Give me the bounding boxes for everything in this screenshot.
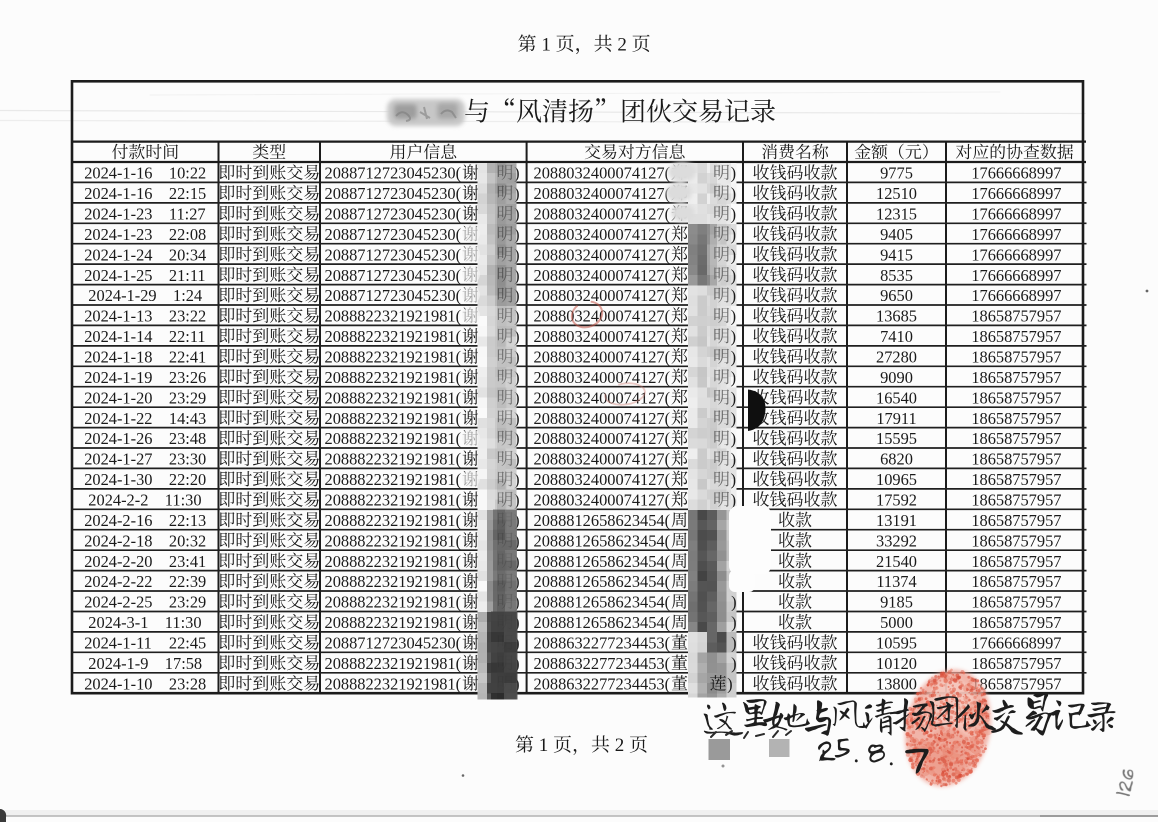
svg-text:6820: 6820 (880, 450, 913, 469)
svg-text:18658757957: 18658757957 (971, 348, 1061, 367)
svg-text:18658757957: 18658757957 (971, 429, 1061, 448)
svg-text:2024-1-20: 2024-1-20 (84, 388, 152, 407)
svg-text:2024-1-16: 2024-1-16 (84, 164, 152, 183)
svg-text:23:22: 23:22 (169, 307, 206, 326)
svg-text:33292: 33292 (876, 531, 917, 550)
svg-text:2: 2 (617, 34, 627, 55)
svg-text:18658757957: 18658757957 (971, 613, 1061, 632)
svg-text:12510: 12510 (876, 184, 917, 203)
svg-text:2024-1-26: 2024-1-26 (84, 429, 152, 448)
svg-text:10965: 10965 (876, 470, 917, 489)
svg-text:18658757957: 18658757957 (971, 531, 1061, 550)
svg-text:18658757957: 18658757957 (971, 491, 1061, 510)
svg-text:13191: 13191 (876, 511, 917, 530)
svg-text:18658757957: 18658757957 (971, 327, 1061, 346)
svg-text:18658757957: 18658757957 (971, 409, 1061, 428)
svg-text:2024-1-19: 2024-1-19 (84, 368, 152, 387)
svg-text:18658757957: 18658757957 (971, 572, 1061, 591)
svg-text:18658757957: 18658757957 (971, 368, 1061, 387)
svg-text:20:34: 20:34 (169, 245, 206, 264)
svg-text:2024-1-23: 2024-1-23 (84, 205, 152, 224)
svg-text:2024-1-23: 2024-1-23 (84, 225, 152, 244)
svg-text:27280: 27280 (876, 348, 917, 367)
svg-text:23:29: 23:29 (169, 593, 206, 612)
svg-text:17666668997: 17666668997 (971, 184, 1061, 203)
svg-text:10595: 10595 (876, 634, 917, 653)
svg-text:23:48: 23:48 (169, 429, 206, 448)
svg-text:1: 1 (539, 735, 549, 756)
svg-text:22:39: 22:39 (169, 572, 206, 591)
svg-text:11:27: 11:27 (169, 205, 206, 224)
svg-text:2024-2-25: 2024-2-25 (84, 593, 152, 612)
svg-text:14:43: 14:43 (169, 409, 206, 428)
svg-text:2024-1-27: 2024-1-27 (84, 450, 152, 469)
svg-text:11:30: 11:30 (165, 491, 202, 510)
svg-text:18658757957: 18658757957 (971, 654, 1061, 673)
svg-text:9090: 9090 (880, 368, 913, 387)
svg-text:1:24: 1:24 (173, 286, 202, 305)
svg-text:17666668997: 17666668997 (971, 266, 1061, 285)
svg-text:17666668997: 17666668997 (971, 245, 1061, 264)
svg-text:2024-1-25: 2024-1-25 (84, 266, 152, 285)
svg-text:23:41: 23:41 (169, 552, 206, 571)
svg-text:17592: 17592 (876, 491, 917, 510)
svg-text:18658757957: 18658757957 (971, 470, 1061, 489)
svg-text:2024-2-18: 2024-2-18 (84, 531, 152, 550)
svg-text:5000: 5000 (880, 613, 913, 632)
svg-text:22:13: 22:13 (169, 511, 206, 530)
svg-text:2024-2-16: 2024-2-16 (84, 511, 152, 530)
svg-text:10:22: 10:22 (169, 164, 206, 183)
svg-text:18658757957: 18658757957 (971, 511, 1061, 530)
svg-text:11:30: 11:30 (165, 613, 202, 632)
svg-text:9185: 9185 (880, 593, 913, 612)
svg-text:7410: 7410 (880, 327, 913, 346)
svg-text:2024-2-20: 2024-2-20 (84, 552, 152, 571)
svg-text:17666668997: 17666668997 (971, 225, 1061, 244)
svg-text:8535: 8535 (880, 266, 913, 285)
svg-text:18658757957: 18658757957 (971, 450, 1061, 469)
svg-text:23:28: 23:28 (169, 674, 206, 693)
svg-text:17666668997: 17666668997 (971, 634, 1061, 653)
svg-text:2024-1-13: 2024-1-13 (84, 307, 152, 326)
svg-text:13800: 13800 (876, 674, 917, 693)
svg-text:15595: 15595 (876, 429, 917, 448)
svg-text:23:26: 23:26 (169, 368, 206, 387)
svg-text:9775: 9775 (880, 164, 913, 183)
svg-text:11374: 11374 (876, 572, 916, 591)
svg-text:17:58: 17:58 (165, 654, 202, 673)
svg-text:2024-1-14: 2024-1-14 (84, 327, 152, 346)
svg-text:13685: 13685 (876, 307, 917, 326)
svg-text:21:11: 21:11 (169, 266, 206, 285)
svg-text:18658757957: 18658757957 (971, 388, 1061, 407)
svg-text:2024-1-11: 2024-1-11 (84, 634, 152, 653)
svg-text:2024-2-2: 2024-2-2 (88, 491, 148, 510)
svg-text:17911: 17911 (876, 409, 916, 428)
svg-text:2024-1-24: 2024-1-24 (84, 245, 152, 264)
svg-text:23:30: 23:30 (169, 450, 206, 469)
svg-text:9415: 9415 (880, 245, 913, 264)
svg-text:2024-1-30: 2024-1-30 (84, 470, 152, 489)
svg-text:22:20: 22:20 (169, 470, 206, 489)
svg-text:17666668997: 17666668997 (971, 205, 1061, 224)
svg-text:23:29: 23:29 (169, 388, 206, 407)
svg-text:2024-1-29: 2024-1-29 (88, 286, 156, 305)
svg-text:9405: 9405 (880, 225, 913, 244)
svg-text:2024-1-16: 2024-1-16 (84, 184, 152, 203)
svg-text:17666668997: 17666668997 (971, 286, 1061, 305)
svg-text:2024-1-22: 2024-1-22 (84, 409, 152, 428)
svg-text:2024-3-1: 2024-3-1 (88, 613, 148, 632)
svg-text:16540: 16540 (876, 388, 917, 407)
svg-text:2024-1-18: 2024-1-18 (84, 348, 152, 367)
svg-text:17666668997: 17666668997 (971, 164, 1061, 183)
svg-text:9650: 9650 (880, 286, 913, 305)
svg-text:22:41: 22:41 (169, 348, 206, 367)
svg-text:18658757957: 18658757957 (971, 593, 1061, 612)
svg-text:10120: 10120 (876, 654, 917, 673)
svg-text:2024-2-22: 2024-2-22 (84, 572, 152, 591)
svg-text:18658757957: 18658757957 (971, 552, 1061, 571)
svg-text:21540: 21540 (876, 552, 917, 571)
svg-text:22:15: 22:15 (169, 184, 206, 203)
svg-text:1: 1 (541, 34, 551, 55)
svg-text:22:11: 22:11 (169, 327, 206, 346)
svg-text:20:32: 20:32 (169, 531, 206, 550)
svg-text:18658757957: 18658757957 (971, 307, 1061, 326)
svg-text:22:08: 22:08 (169, 225, 206, 244)
svg-text:2024-1-10: 2024-1-10 (84, 674, 152, 693)
svg-text:22:45: 22:45 (169, 634, 206, 653)
svg-text:12315: 12315 (876, 205, 917, 224)
svg-text:2024-1-9: 2024-1-9 (88, 654, 148, 673)
svg-text:2: 2 (615, 735, 625, 756)
